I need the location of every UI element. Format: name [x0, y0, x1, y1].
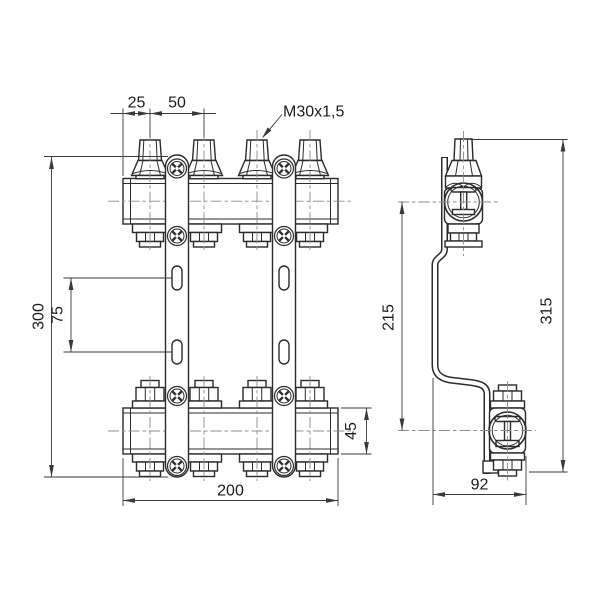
dim-215-label: 215	[381, 304, 398, 331]
dim-45-label: 45	[343, 422, 360, 440]
mounting-bracket-right	[273, 155, 296, 477]
dim-92-label: 92	[471, 477, 489, 494]
dim-75-label: 75	[50, 306, 67, 324]
dim-25-label: 25	[128, 95, 146, 112]
dim-50-label: 50	[168, 95, 186, 112]
mounting-bracket-left	[166, 155, 189, 477]
dim-315-label: 315	[539, 298, 556, 325]
side-view	[398, 131, 536, 481]
drawing-svg: 25 50 M30x1,5 300 75 45 200 215 315	[0, 0, 600, 600]
technical-drawing-manifold: 25 50 M30x1,5 300 75 45 200 215 315	[0, 0, 600, 600]
dim-300-label: 300	[31, 303, 48, 330]
thread-label: M30x1,5	[283, 104, 344, 121]
dim-200-label: 200	[217, 483, 244, 500]
front-view	[108, 130, 352, 481]
